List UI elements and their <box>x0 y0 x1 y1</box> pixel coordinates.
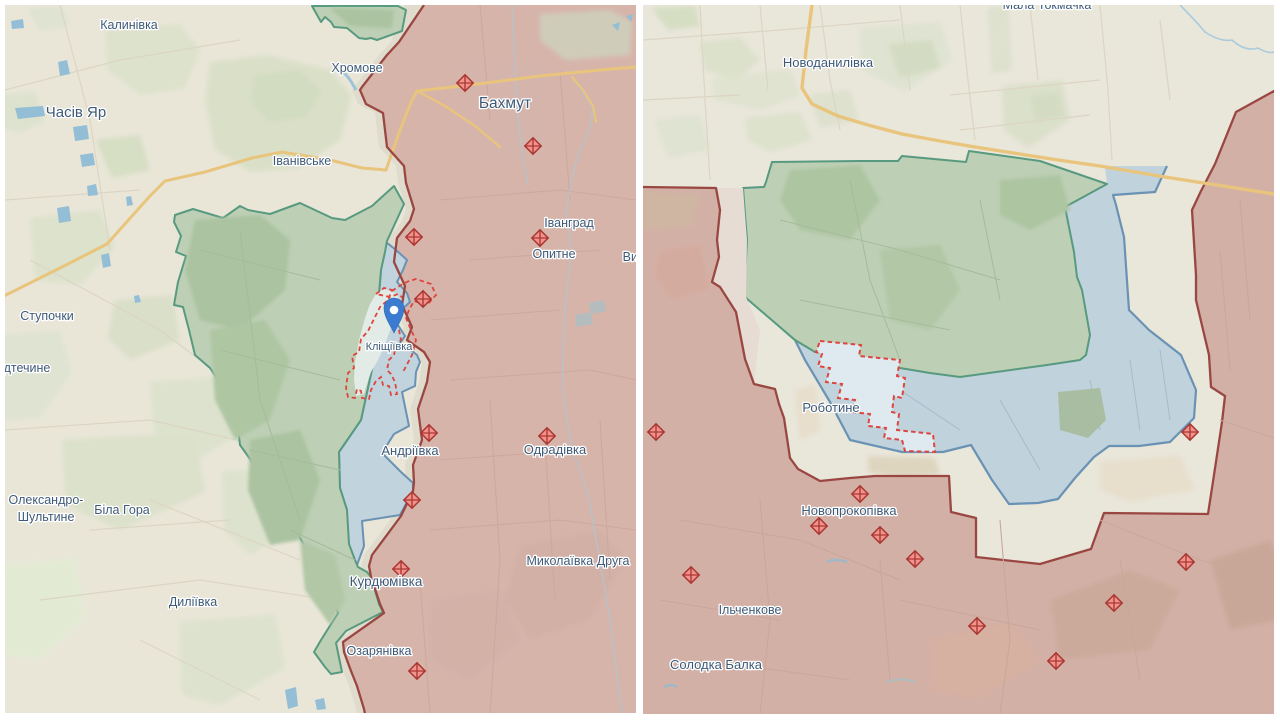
svg-text:Калинівка: Калинівка <box>100 18 158 32</box>
svg-text:Іванівське: Іванівське <box>273 154 331 168</box>
svg-text:Опитне: Опитне <box>532 247 575 261</box>
svg-text:Біла Гора: Біла Гора <box>94 503 150 517</box>
svg-text:Диліївка: Диліївка <box>169 595 217 609</box>
svg-text:Миколаївка Друга: Миколаївка Друга <box>527 554 630 568</box>
svg-text:Новопрокопівка: Новопрокопівка <box>801 503 897 518</box>
svg-text:Андріївка: Андріївка <box>381 443 439 458</box>
svg-text:Хромове: Хромове <box>331 61 382 75</box>
svg-text:Озарянівка: Озарянівка <box>346 644 411 658</box>
svg-text:Мала Токмачка: Мала Токмачка <box>1003 5 1092 12</box>
svg-text:Роботине: Роботине <box>802 400 859 415</box>
svg-text:Іванград: Іванград <box>544 216 594 230</box>
svg-text:Ступочки: Ступочки <box>20 309 74 323</box>
svg-text:Ільченкове: Ільченкове <box>719 603 782 617</box>
svg-text:Кліщіївка: Кліщіївка <box>366 341 414 353</box>
svg-text:Предтечине: Предтечине <box>5 361 50 375</box>
svg-text:Шультине: Шультине <box>18 510 75 524</box>
svg-text:Олександро-: Олександро- <box>9 493 84 507</box>
svg-text:Ви: Ви <box>623 250 636 264</box>
svg-text:Солодка Балка: Солодка Балка <box>670 657 763 672</box>
svg-text:Часів Яр: Часів Яр <box>46 104 106 121</box>
svg-text:Одрадівка: Одрадівка <box>524 442 587 457</box>
svg-text:Бахмут: Бахмут <box>479 95 531 112</box>
svg-text:Курдюмівка: Курдюмівка <box>350 574 423 589</box>
svg-text:Новоданилівка: Новоданилівка <box>783 55 874 70</box>
